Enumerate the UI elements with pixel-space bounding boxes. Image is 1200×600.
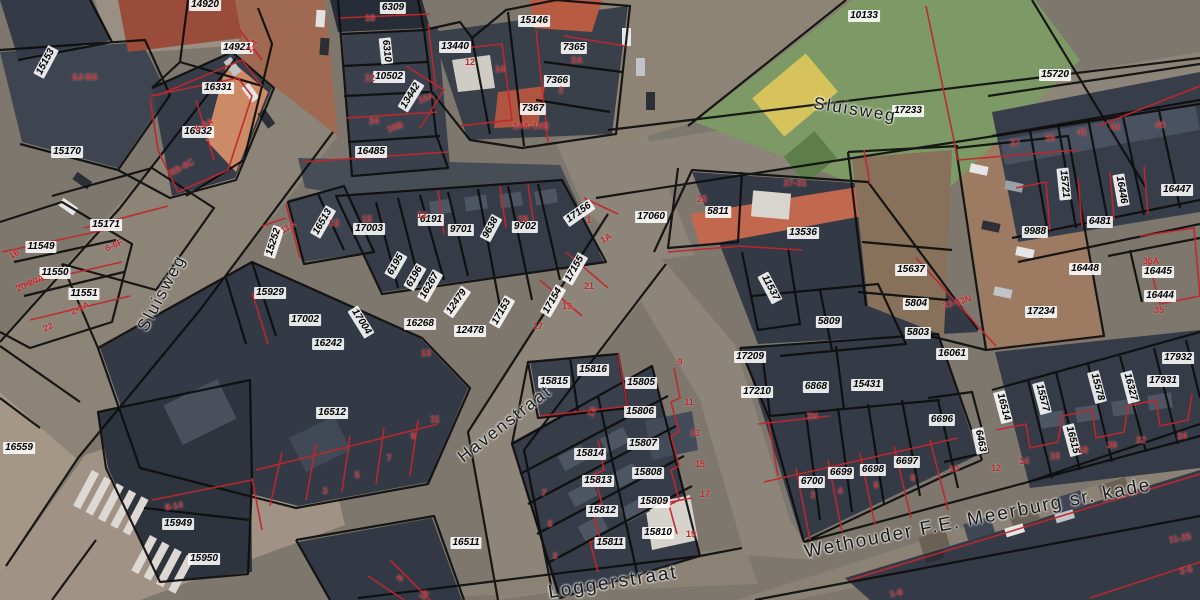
parcel-label-15808: 15808 bbox=[632, 467, 664, 479]
house-number-label: 9 bbox=[677, 357, 682, 367]
street-name-label: Sluisweg bbox=[812, 94, 898, 127]
parcel-label-17004: 17004 bbox=[347, 305, 374, 338]
house-number-label: 14 bbox=[1019, 456, 1029, 466]
parcel-label-16444: 16444 bbox=[1144, 290, 1176, 302]
street-name-label: Wethouder F.E. Meerburg sr. kade bbox=[803, 475, 1154, 564]
parcel-label-7365: 7365 bbox=[561, 42, 587, 54]
parcel-label-15806: 15806 bbox=[624, 406, 656, 418]
parcel-label-6698: 6698 bbox=[860, 464, 886, 476]
parcel-label-15950: 15950 bbox=[188, 553, 220, 565]
house-number-label: 2-5 bbox=[1178, 563, 1193, 576]
house-number-label: 12 bbox=[465, 57, 475, 67]
house-number-label: 22 bbox=[365, 73, 375, 83]
house-number-label: 8B-8C bbox=[168, 156, 196, 177]
street-name-label: Loggerstraat bbox=[547, 562, 680, 600]
parcel-label-6868: 6868 bbox=[803, 381, 829, 393]
house-number-label: 12 bbox=[417, 210, 427, 220]
parcel-label-15814: 15814 bbox=[574, 448, 606, 460]
parcel-label-17931: 17931 bbox=[1147, 375, 1179, 387]
house-number-label: 21 bbox=[584, 281, 594, 291]
house-number-label: 1A bbox=[599, 231, 614, 245]
parcel-label-15929: 15929 bbox=[254, 287, 286, 299]
parcel-label-15578: 15578 bbox=[1087, 370, 1107, 404]
parcel-label-11537: 11537 bbox=[757, 271, 782, 304]
house-number-label: 17 bbox=[700, 489, 710, 499]
house-number-label: 10 bbox=[949, 464, 959, 474]
house-number-label: 5 bbox=[354, 470, 359, 480]
parcel-label-16242: 16242 bbox=[312, 338, 344, 350]
house-number-label: 8-14 bbox=[164, 500, 183, 513]
parcel-label-11549: 11549 bbox=[25, 241, 56, 253]
house-number-label: 10 bbox=[585, 405, 599, 419]
parcel-label-16327: 16327 bbox=[1120, 370, 1140, 404]
map-labels-layer: 1492014921151531633116332151706309631010… bbox=[0, 0, 1200, 600]
parcel-label-9638: 9638 bbox=[480, 214, 503, 243]
house-number-label: 17 bbox=[533, 321, 543, 331]
house-number-label: 24 bbox=[369, 116, 379, 126]
parcel-label-16061: 16061 bbox=[936, 348, 968, 360]
parcel-label-6699: 6699 bbox=[828, 467, 854, 479]
house-number-label: 1-9 bbox=[889, 587, 904, 599]
house-number-label: 43 bbox=[1110, 122, 1120, 132]
house-number-label: 11-25 bbox=[1168, 531, 1192, 545]
parcel-label-13440: 13440 bbox=[439, 41, 471, 53]
parcel-label-16447: 16447 bbox=[1161, 184, 1193, 196]
street-name-label: Sluisweg bbox=[133, 251, 190, 335]
house-number-label: 4 bbox=[837, 486, 842, 496]
map-viewport[interactable]: 1492014921151531633116332151706309631010… bbox=[0, 0, 1200, 600]
house-number-label: 2-2A bbox=[69, 299, 91, 316]
house-number-label: 2A bbox=[571, 55, 583, 65]
parcel-label-15170: 15170 bbox=[51, 146, 83, 158]
parcel-label-6310: 6310 bbox=[379, 37, 394, 64]
parcel-label-15720: 15720 bbox=[1039, 69, 1071, 81]
house-number-label: 13 bbox=[690, 428, 700, 438]
parcel-label-16268: 16268 bbox=[404, 318, 436, 330]
house-number-label: 19 bbox=[562, 301, 572, 311]
house-number-label: 16 bbox=[7, 247, 21, 261]
parcel-label-15805: 15805 bbox=[625, 377, 657, 389]
parcel-label-5811: 5811 bbox=[705, 206, 731, 218]
parcel-label-14920: 14920 bbox=[189, 0, 221, 11]
house-number-label: 8 bbox=[910, 473, 915, 483]
parcel-label-16448: 16448 bbox=[1069, 263, 1101, 275]
house-number-label: 22 bbox=[41, 320, 54, 333]
house-number-label: 5 bbox=[547, 519, 552, 529]
parcel-label-5804: 5804 bbox=[903, 298, 929, 310]
house-number-label: 1 bbox=[586, 215, 591, 225]
parcel-label-17002: 17002 bbox=[289, 314, 321, 326]
house-number-label: 19 bbox=[518, 214, 528, 224]
parcel-label-6697: 6697 bbox=[894, 456, 920, 468]
parcel-label-10502: 10502 bbox=[373, 71, 405, 83]
parcel-label-16445: 16445 bbox=[1142, 266, 1174, 278]
parcel-label-13536: 13536 bbox=[787, 227, 819, 239]
house-number-label: 15 bbox=[362, 214, 372, 224]
parcel-label-16511: 16511 bbox=[450, 537, 481, 549]
parcel-label-9988: 9988 bbox=[1022, 226, 1048, 238]
parcel-label-12478: 12478 bbox=[454, 325, 486, 337]
parcel-label-15809: 15809 bbox=[638, 496, 670, 508]
parcel-label-17209: 17209 bbox=[734, 351, 766, 363]
parcel-label-11551: 11551 bbox=[68, 288, 99, 300]
parcel-label-12479: 12479 bbox=[443, 286, 471, 319]
parcel-label-5809: 5809 bbox=[816, 316, 842, 328]
street-name-label: Havenstraat bbox=[454, 381, 556, 467]
parcel-label-17932: 17932 bbox=[1162, 352, 1194, 364]
house-number-label: 6-6F bbox=[103, 237, 124, 254]
house-number-label: 7 bbox=[386, 453, 391, 463]
parcel-label-15721: 15721 bbox=[1056, 168, 1071, 201]
house-number-label: 22 bbox=[1136, 435, 1146, 445]
house-number-label: 13 bbox=[421, 348, 431, 358]
parcel-label-17234: 17234 bbox=[1025, 306, 1057, 318]
house-number-label: 24 bbox=[1177, 431, 1187, 441]
house-number-label: 10 bbox=[417, 588, 431, 600]
house-number-label: 45 bbox=[1155, 120, 1165, 130]
parcel-label-6696: 6696 bbox=[929, 414, 955, 426]
house-number-label: 20 bbox=[1107, 440, 1117, 450]
house-number-label: 16 bbox=[1050, 451, 1060, 461]
parcel-label-15949: 15949 bbox=[162, 518, 194, 530]
house-number-label: 3 bbox=[552, 551, 557, 561]
house-number-label: 39 bbox=[1045, 133, 1055, 143]
parcel-label-15807: 15807 bbox=[627, 438, 659, 450]
parcel-label-17210: 17210 bbox=[741, 386, 773, 398]
parcel-label-15153: 15153 bbox=[33, 45, 59, 79]
house-number-label: 6J-6G bbox=[72, 72, 97, 82]
house-number-label: 2 bbox=[558, 85, 563, 95]
house-number-label: 8 bbox=[394, 573, 405, 583]
house-number-label: 41 bbox=[1077, 127, 1087, 137]
house-number-label: 2 bbox=[810, 490, 815, 500]
house-number-label: 10B bbox=[386, 119, 405, 134]
house-number-label: 11A bbox=[279, 219, 298, 236]
parcel-label-15146: 15146 bbox=[518, 15, 550, 27]
parcel-label-9701: 9701 bbox=[448, 224, 474, 236]
parcel-label-6195: 6195 bbox=[384, 251, 408, 280]
house-number-label: 20-20A bbox=[15, 272, 46, 294]
parcel-label-15811: 15811 bbox=[594, 537, 625, 549]
house-number-label: 18 bbox=[1078, 445, 1088, 455]
parcel-label-15171: 15171 bbox=[90, 219, 122, 231]
house-number-label: 25 bbox=[697, 194, 707, 204]
parcel-label-6309: 6309 bbox=[380, 2, 406, 14]
house-number-label: 13 bbox=[329, 218, 339, 228]
parcel-label-7366: 7366 bbox=[544, 75, 570, 87]
parcel-label-16512: 16512 bbox=[316, 407, 348, 419]
house-number-label: 35 bbox=[1154, 305, 1164, 315]
house-number-label: 19 bbox=[686, 529, 696, 539]
house-number-label: 18 bbox=[365, 13, 375, 23]
parcel-label-15577: 15577 bbox=[1032, 381, 1052, 415]
house-number-label: 33-33N bbox=[941, 293, 972, 310]
parcel-label-6481: 6481 bbox=[1087, 216, 1113, 228]
house-number-label: 6 bbox=[873, 480, 878, 490]
parcel-label-17003: 17003 bbox=[353, 223, 385, 235]
parcel-label-5803: 5803 bbox=[905, 327, 931, 339]
parcel-label-17153: 17153 bbox=[489, 295, 515, 329]
house-number-label: 35A bbox=[1143, 256, 1160, 266]
house-number-label: 14A-14B bbox=[513, 121, 549, 131]
house-number-label: 15 bbox=[695, 459, 705, 469]
parcel-label-6463: 6463 bbox=[971, 427, 988, 455]
parcel-label-15813: 15813 bbox=[582, 475, 614, 487]
parcel-label-16446: 16446 bbox=[1112, 173, 1129, 206]
parcel-label-15812: 15812 bbox=[586, 505, 618, 517]
parcel-label-15431: 15431 bbox=[851, 379, 883, 391]
parcel-label-15816: 15816 bbox=[577, 364, 609, 376]
parcel-label-16485: 16485 bbox=[355, 146, 387, 158]
house-number-label: 12 bbox=[991, 463, 1001, 473]
house-number-label: 7 bbox=[541, 488, 546, 498]
parcel-label-10133: 10133 bbox=[848, 10, 880, 22]
house-number-label: 2H bbox=[806, 411, 818, 421]
parcel-label-7367: 7367 bbox=[520, 103, 546, 115]
parcel-label-16514: 16514 bbox=[993, 390, 1013, 424]
house-number-label: 37 bbox=[1010, 138, 1020, 148]
parcel-label-6700: 6700 bbox=[799, 476, 825, 488]
parcel-label-15810: 15810 bbox=[642, 527, 674, 539]
house-number-label: 11 bbox=[430, 414, 440, 424]
parcel-label-16559: 16559 bbox=[3, 442, 35, 454]
parcel-label-17060: 17060 bbox=[635, 211, 667, 223]
parcel-label-16331: 16331 bbox=[202, 82, 234, 94]
house-number-label: 11 bbox=[684, 397, 694, 407]
parcel-label-15637: 15637 bbox=[895, 264, 927, 276]
house-number-label: 3 bbox=[322, 486, 327, 496]
house-number-label: 27-31 bbox=[783, 178, 806, 188]
house-number-label: 9 bbox=[410, 431, 415, 441]
house-number-label: 14 bbox=[495, 64, 505, 74]
